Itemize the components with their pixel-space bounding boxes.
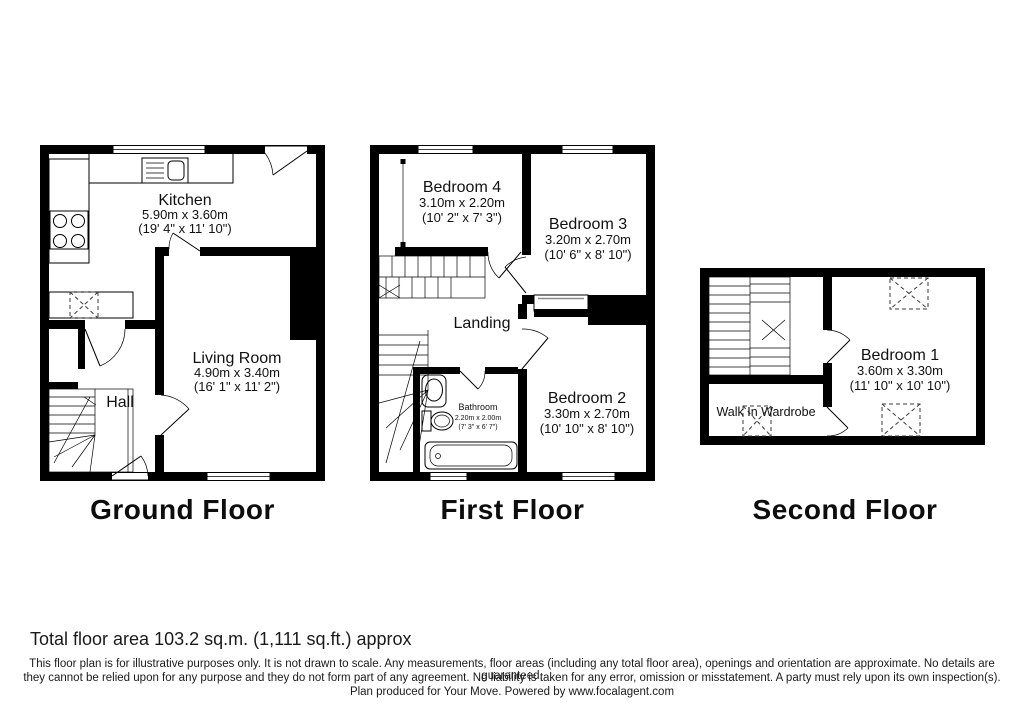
hob: [50, 211, 88, 249]
landing-label: Landing: [454, 315, 511, 332]
kitchen-imperial: (19' 4" x 11' 10"): [138, 221, 231, 236]
bedroom2-window: [562, 473, 615, 481]
bedroom3-metric: 3.20m x 2.70m: [545, 232, 631, 247]
bedroom3-imperial: (10' 6" x 8' 10"): [544, 247, 631, 262]
living-room-door: [161, 395, 189, 435]
disclaimer-line-3: Plan produced for Your Move. Powered by …: [0, 686, 1024, 698]
living-room-window: [207, 473, 270, 481]
floorplan-page: Kitchen 5.90m x 3.60m (19' 4" x 11' 10")…: [0, 0, 1024, 717]
wardrobe-label: Walk In Wardrobe: [716, 405, 815, 419]
bedroom1-door: [827, 330, 850, 363]
chimney-breast: [588, 295, 646, 325]
bedroom4-name: Bedroom 4: [423, 179, 501, 196]
hall-cupboard-door: [85, 329, 125, 366]
kitchen-counter: [49, 154, 233, 318]
first-floor-stairs: [379, 256, 485, 465]
bedroom2-metric: 3.30m x 2.70m: [544, 406, 630, 421]
kitchen-label: Kitchen 5.90m x 3.60m (19' 4" x 11' 10"): [138, 192, 231, 236]
total-floor-area: Total floor area 103.2 sq.m. (1,111 sq.f…: [30, 629, 412, 650]
ground-floor-caption: Ground Floor: [40, 494, 325, 526]
front-door: [112, 456, 148, 481]
living-room-metric: 4.90m x 3.40m: [194, 365, 280, 380]
bedroom3-window: [562, 146, 613, 154]
bathroom-imperial: (7' 3" x 6' 7"): [458, 424, 497, 431]
basin: [422, 375, 446, 407]
bedroom3-door: [505, 257, 526, 293]
ground-floor-plan: Kitchen 5.90m x 3.60m (19' 4" x 11' 10")…: [40, 145, 325, 481]
toilet: [422, 411, 453, 431]
kitchen-sink: [142, 158, 188, 183]
bedroom4-wardrobe-line: [401, 159, 406, 247]
second-floor-plan: Bedroom 1 3.60m x 3.30m (11' 10" x 10' 1…: [700, 268, 985, 445]
back-door: [265, 146, 307, 175]
dashed-box-top: [890, 278, 928, 309]
bathtub: [425, 442, 517, 469]
bedroom4-window: [418, 146, 473, 154]
bedroom1-imperial: (11' 10" x 10' 10"): [850, 378, 951, 393]
bedroom1-name: Bedroom 1: [861, 347, 939, 364]
bedroom2-imperial: (10' 10" x 8' 10"): [540, 421, 634, 436]
bedroom4-metric: 3.10m x 2.20m: [419, 195, 505, 210]
bathroom-name: Bathroom: [458, 402, 497, 412]
dashed-box-bottom: [882, 404, 920, 436]
first-floor-plan: Bedroom 4 3.10m x 2.20m (10' 2" x 7' 3")…: [370, 145, 655, 481]
bedroom3-label: Bedroom 3 3.20m x 2.70m (10' 6" x 8' 10"…: [544, 216, 631, 262]
built-in-cupboard: [534, 295, 588, 311]
bedroom2-label: Bedroom 2 3.30m x 2.70m (10' 10" x 8' 10…: [540, 390, 634, 436]
hall-label: Hall: [106, 394, 134, 411]
kitchen-metric: 5.90m x 3.60m: [142, 207, 228, 222]
chimney-breast: [290, 250, 316, 340]
bathroom-metric: 2.20m x 2.00m: [455, 415, 501, 422]
bedroom4-label: Bedroom 4 3.10m x 2.20m (10' 2" x 7' 3"): [419, 179, 505, 225]
living-room-label: Living Room 4.90m x 3.40m (16' 1" x 11' …: [193, 350, 282, 394]
first-floor-caption: First Floor: [370, 494, 655, 526]
bedroom3-name: Bedroom 3: [549, 216, 627, 233]
living-room-imperial: (16' 1" x 11' 2"): [194, 379, 280, 394]
bathroom-door: [460, 371, 485, 389]
bedroom1-metric: 3.60m x 3.30m: [857, 363, 943, 378]
bathroom-label: Bathroom 2.20m x 2.00m (7' 3" x 6' 7"): [455, 402, 501, 431]
disclaimer-line-2: they cannot be relied upon for any purpo…: [0, 672, 1024, 684]
second-floor-caption: Second Floor: [700, 494, 990, 526]
bedroom4-door: [488, 252, 521, 278]
bedroom2-name: Bedroom 2: [548, 390, 626, 407]
bedroom1-label: Bedroom 1 3.60m x 3.30m (11' 10" x 10' 1…: [850, 347, 951, 393]
wardrobe-door: [827, 407, 848, 436]
bathroom-window: [430, 473, 467, 481]
bedroom4-imperial: (10' 2" x 7' 3"): [422, 210, 502, 225]
second-floor-stairs: [709, 277, 790, 375]
appliance-dashed-box: [70, 292, 98, 318]
bedroom2-door: [522, 329, 548, 369]
kitchen-window: [113, 146, 205, 154]
